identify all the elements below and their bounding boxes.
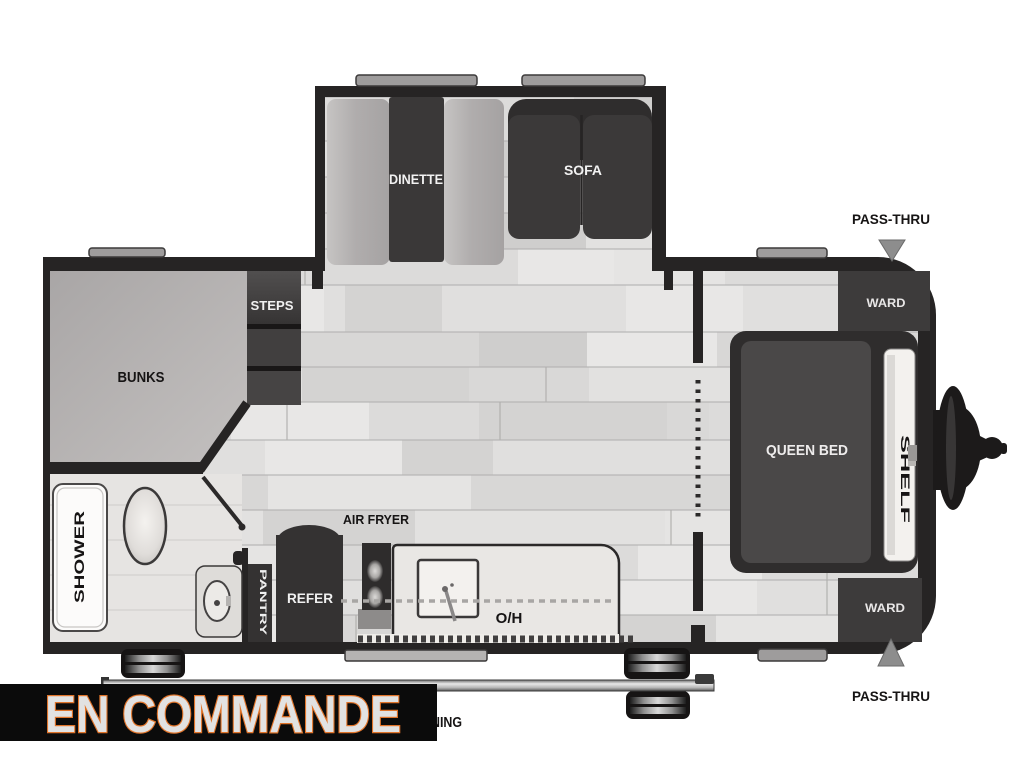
svg-text:DINETTE: DINETTE <box>389 172 443 187</box>
svg-text:SOFA: SOFA <box>564 162 602 178</box>
svg-text:AIR FRYER: AIR FRYER <box>343 512 410 527</box>
svg-text:WARD: WARD <box>867 296 906 310</box>
svg-text:BUNKS: BUNKS <box>118 369 165 386</box>
svg-text:SHOWER: SHOWER <box>72 511 87 603</box>
svg-text:EN COMMANDE: EN COMMANDE <box>45 686 401 744</box>
svg-text:PANTRY: PANTRY <box>257 569 268 636</box>
svg-text:REFER: REFER <box>287 590 333 606</box>
svg-text:O/H: O/H <box>496 610 523 627</box>
svg-text:WARD: WARD <box>865 601 905 615</box>
svg-text:STEPS: STEPS <box>251 298 294 313</box>
svg-text:QUEEN BED: QUEEN BED <box>766 442 848 459</box>
svg-text:PASS-THRU: PASS-THRU <box>852 211 930 227</box>
svg-text:PASS-THRU: PASS-THRU <box>852 688 930 704</box>
